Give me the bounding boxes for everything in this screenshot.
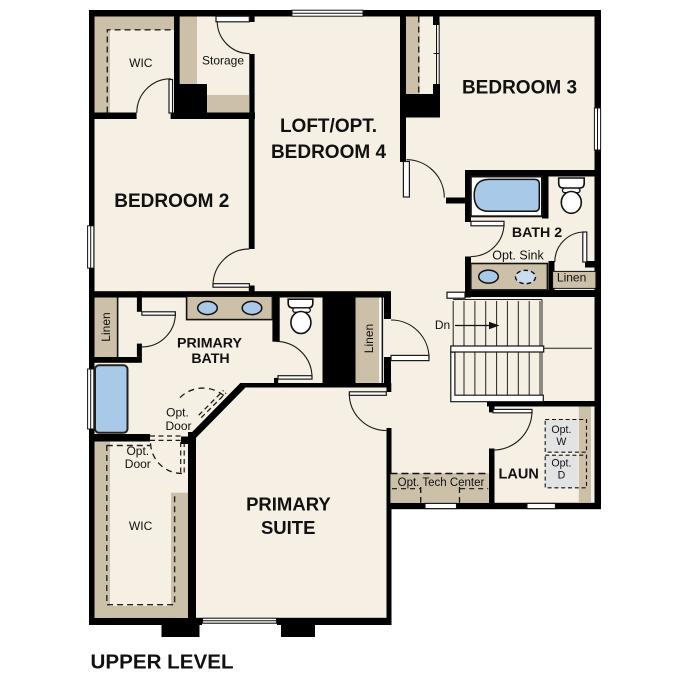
svg-text:LOFT/OPT.: LOFT/OPT. <box>280 116 377 137</box>
svg-text:PRIMARY: PRIMARY <box>246 494 331 515</box>
svg-text:Dn: Dn <box>435 318 450 332</box>
svg-text:Opt. Tech Center: Opt. Tech Center <box>398 477 485 489</box>
svg-text:WIC: WIC <box>129 519 153 533</box>
svg-text:Linen: Linen <box>557 271 586 285</box>
svg-text:SUITE: SUITE <box>261 517 315 538</box>
svg-text:WIC: WIC <box>129 56 153 70</box>
svg-text:Opt.: Opt. <box>551 424 571 436</box>
svg-text:BATH 2: BATH 2 <box>512 225 562 241</box>
svg-text:Opt.: Opt. <box>551 457 571 469</box>
svg-text:Opt.: Opt. <box>166 405 189 419</box>
svg-text:Linen: Linen <box>362 324 376 353</box>
svg-text:BATH: BATH <box>191 351 229 367</box>
svg-text:LAUN: LAUN <box>499 466 539 482</box>
svg-text:D: D <box>558 470 566 482</box>
svg-text:Door: Door <box>165 419 191 433</box>
svg-text:Opt.: Opt. <box>126 444 149 458</box>
svg-text:Opt. Sink: Opt. Sink <box>492 249 544 263</box>
svg-text:W: W <box>556 436 566 448</box>
svg-text:Storage: Storage <box>202 54 244 68</box>
svg-text:BEDROOM 4: BEDROOM 4 <box>271 142 387 163</box>
svg-text:BEDROOM 3: BEDROOM 3 <box>462 77 577 98</box>
svg-text:PRIMARY: PRIMARY <box>177 335 242 351</box>
svg-text:Door: Door <box>125 457 151 471</box>
svg-text:Linen: Linen <box>99 312 113 341</box>
svg-text:BEDROOM 2: BEDROOM 2 <box>114 191 229 212</box>
svg-text:UPPER LEVEL: UPPER LEVEL <box>91 651 234 674</box>
